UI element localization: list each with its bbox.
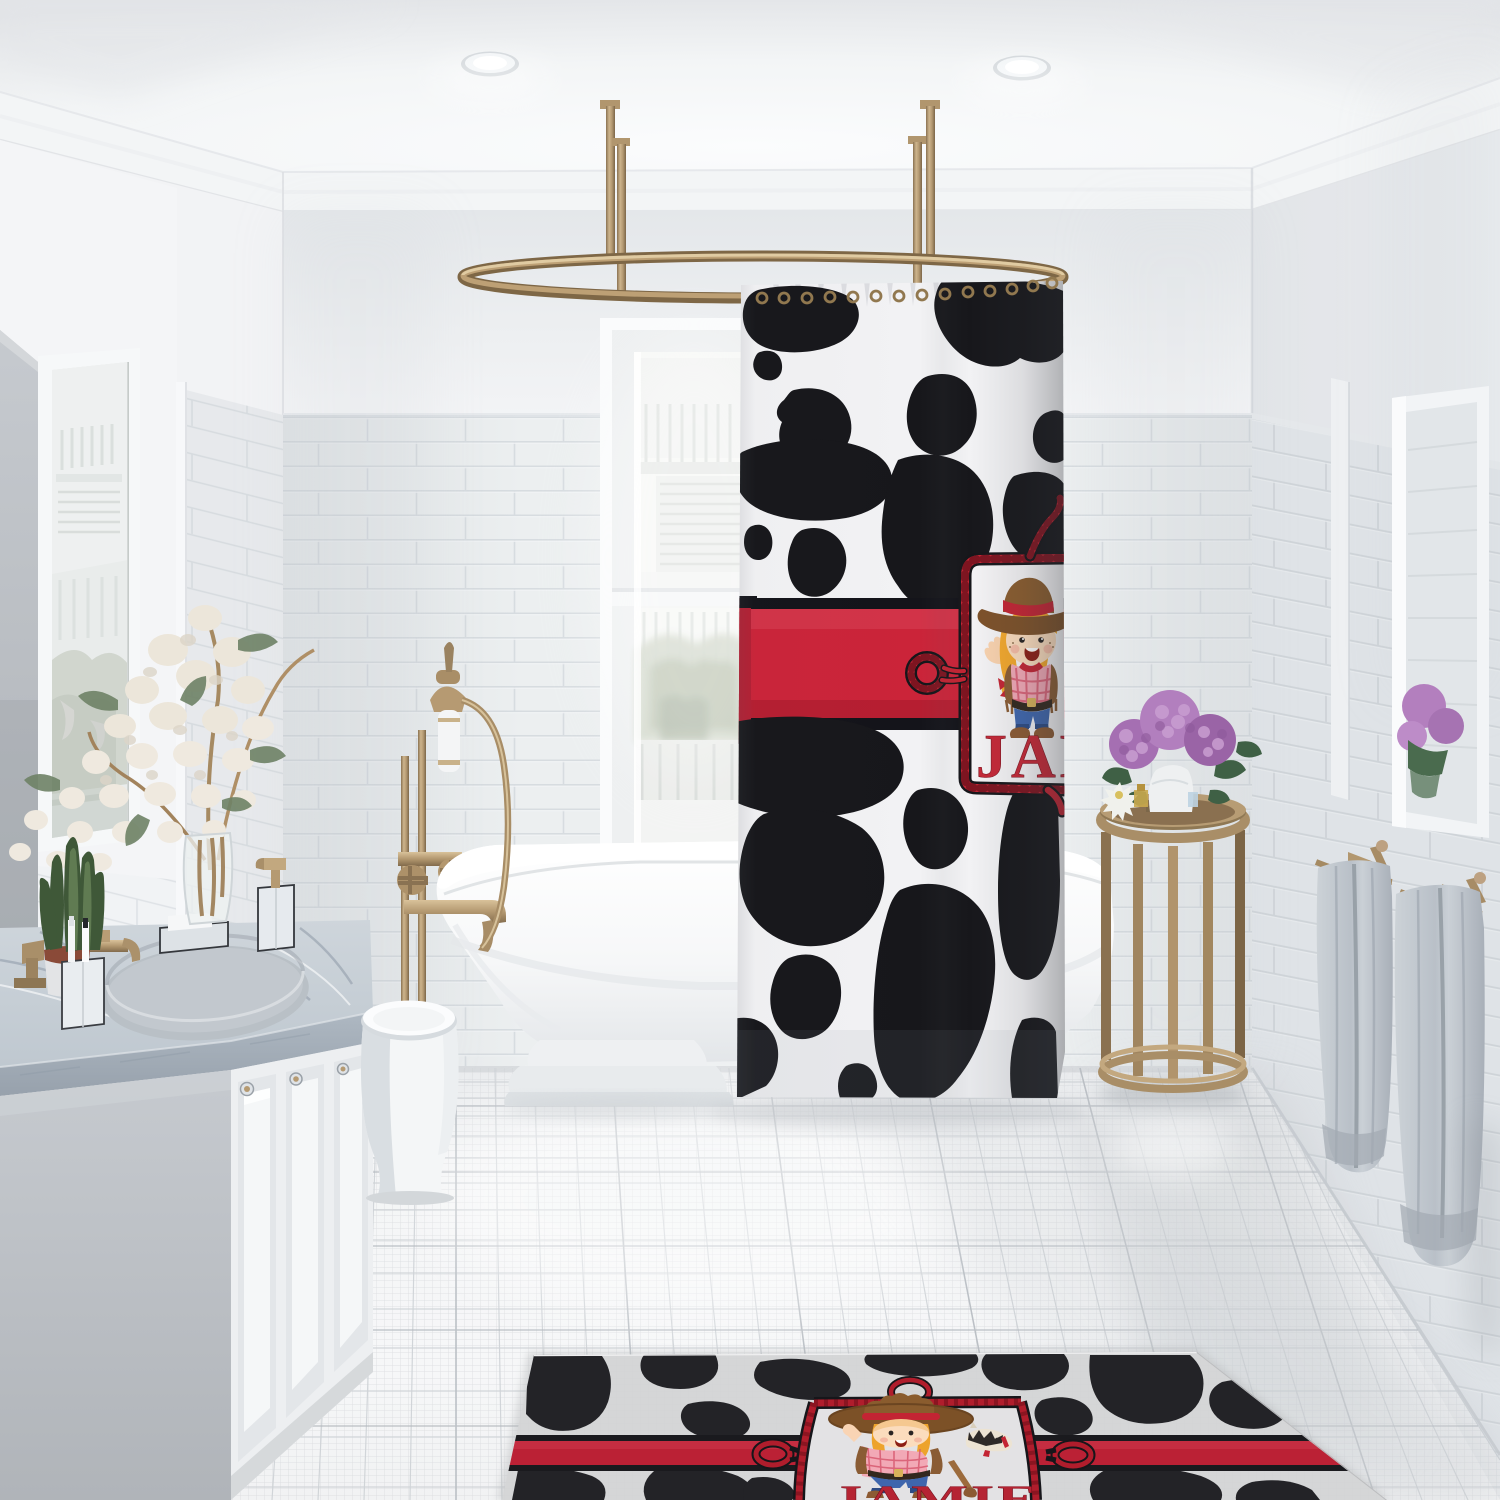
svg-text:JAMIE: JAMIE: [832, 1478, 1040, 1500]
